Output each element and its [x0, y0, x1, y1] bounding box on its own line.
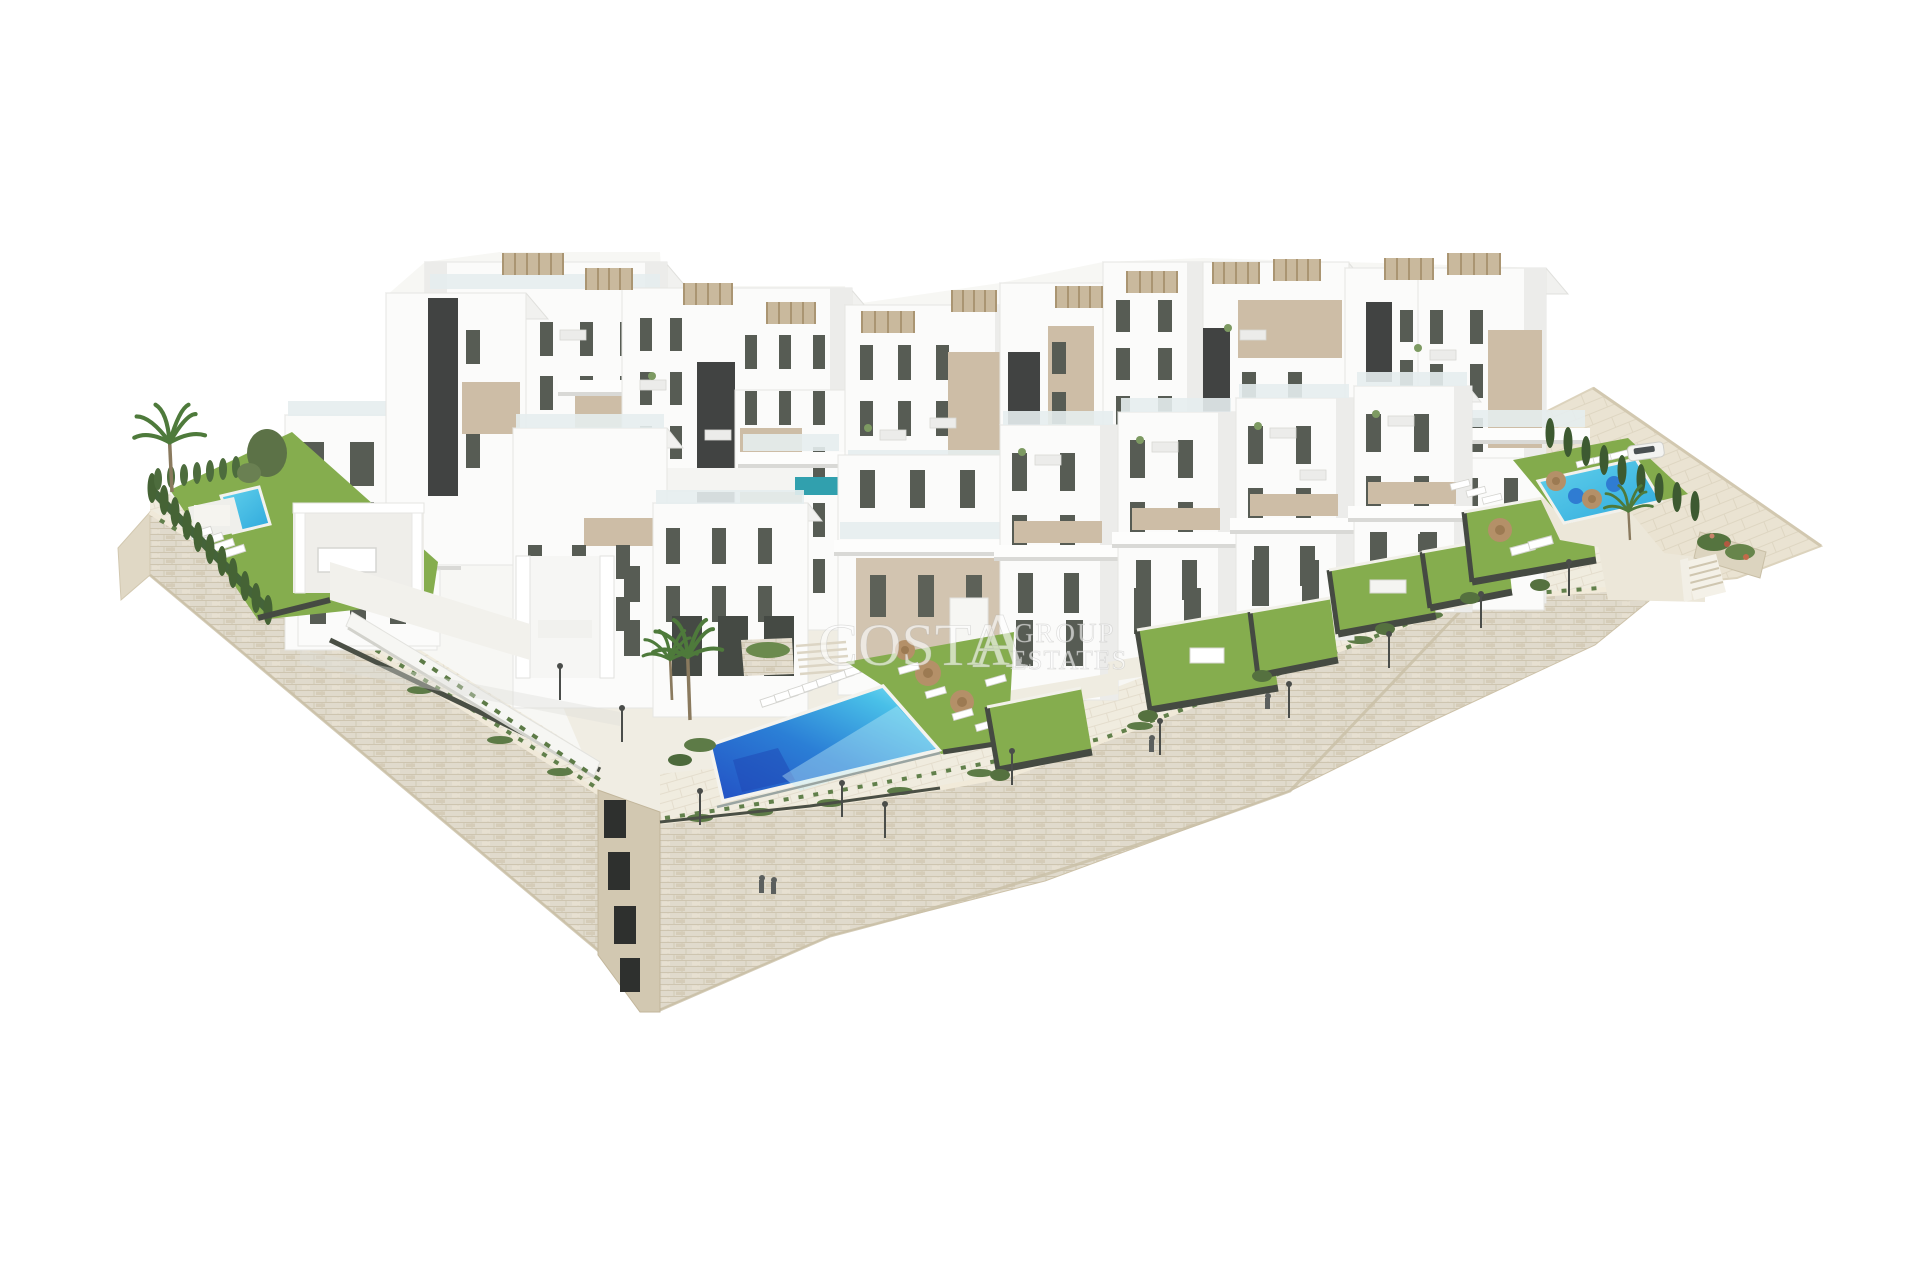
- svg-text:ESTATES: ESTATES: [1010, 645, 1127, 675]
- svg-text:GROUP: GROUP: [1014, 618, 1116, 648]
